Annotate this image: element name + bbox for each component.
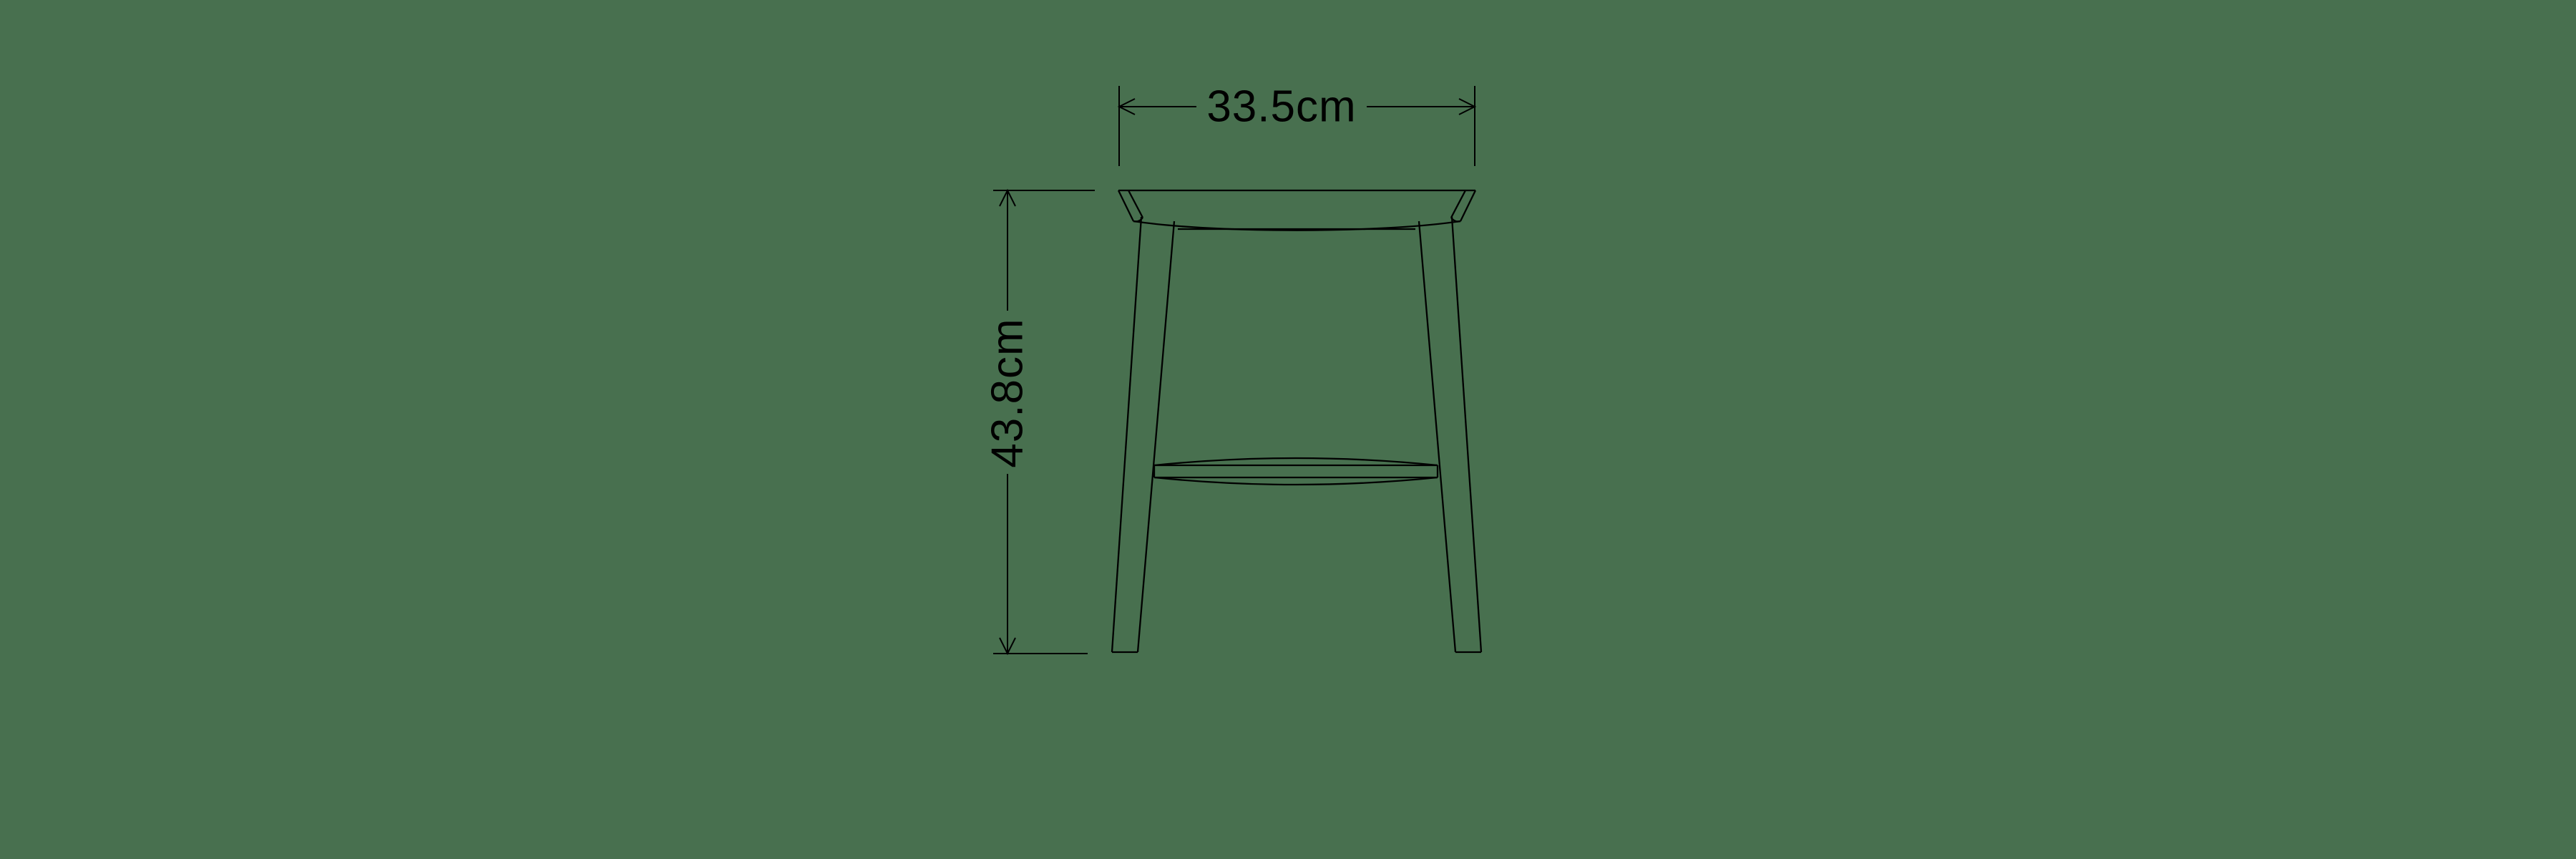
width-dimension-label: 33.5cm xyxy=(1206,82,1356,132)
stool-dimension-diagram: 33.5cm 43.8cm xyxy=(0,0,2576,859)
height-dimension-label: 43.8cm xyxy=(983,318,1033,467)
